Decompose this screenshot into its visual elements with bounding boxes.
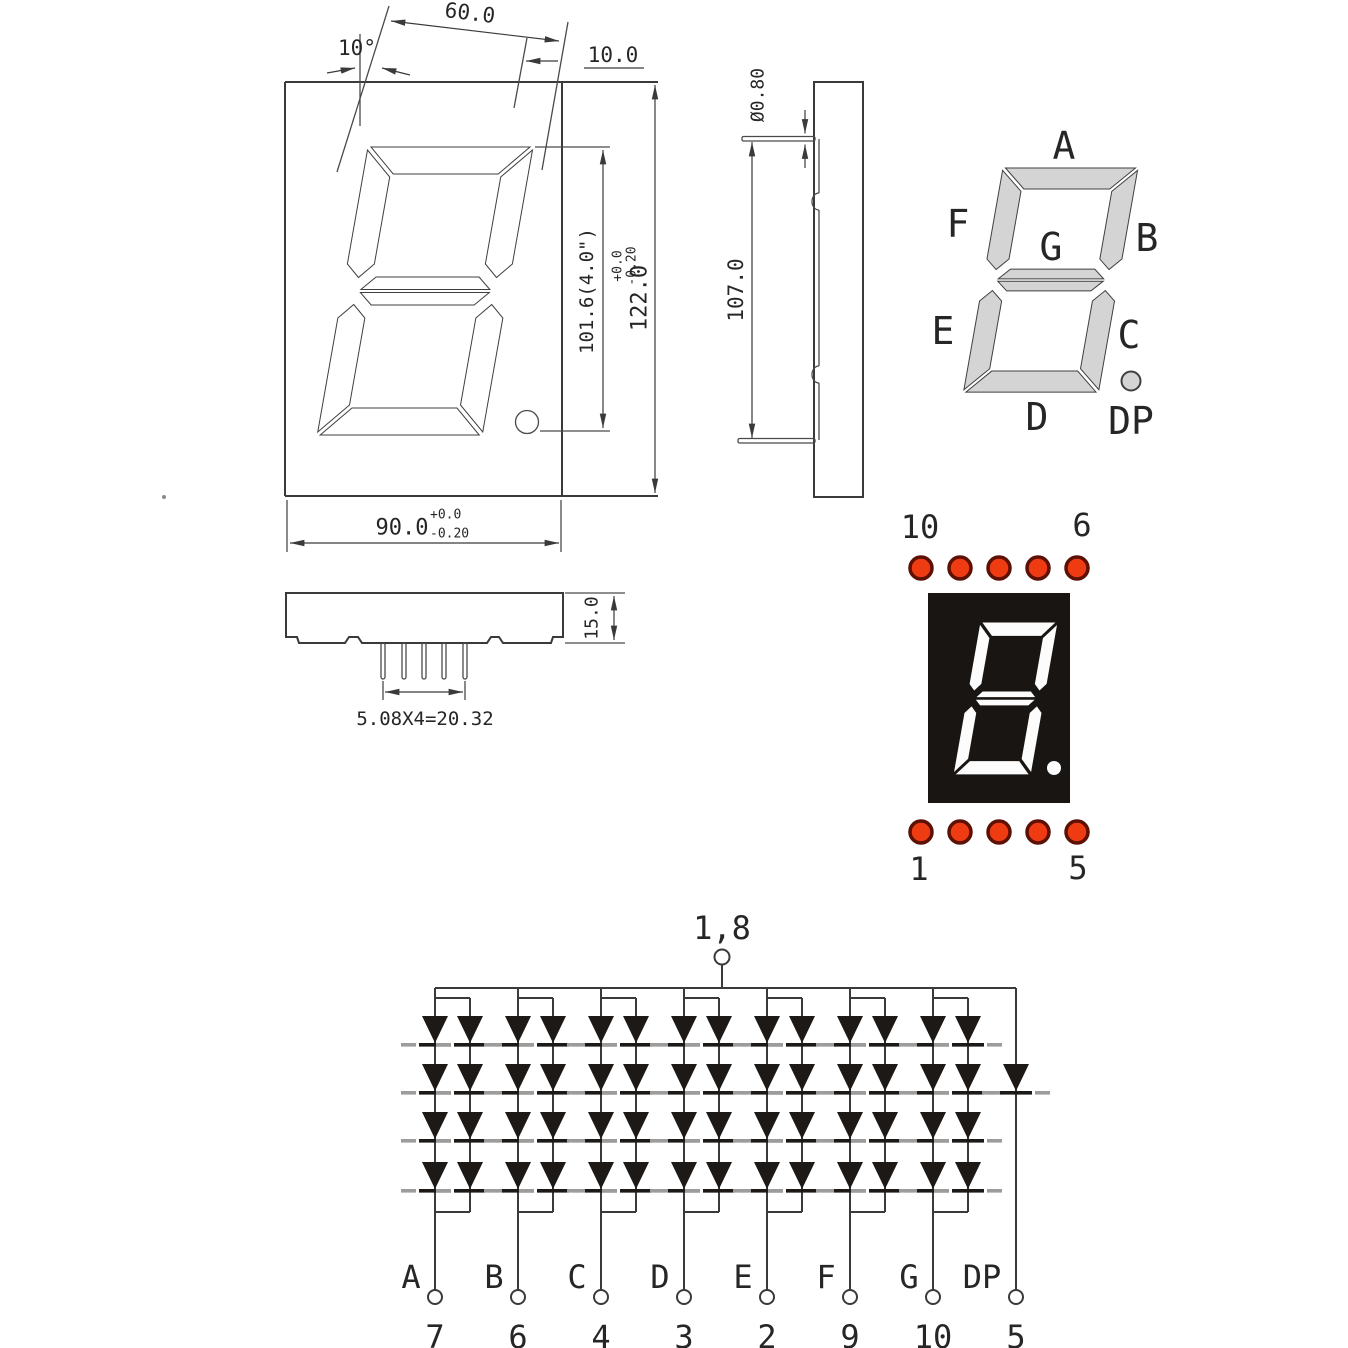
led-pin-dot	[1066, 821, 1088, 843]
dim-label-body-width: 90.0	[376, 516, 429, 541]
seven-segment-datasheet: 60.0 10° 10.0 101.6(4.0") 122.0 +0.0 -0.…	[0, 0, 1348, 1348]
diode-icon	[519, 1064, 587, 1095]
pin-terminal	[926, 1290, 940, 1304]
diode-icon	[484, 1016, 552, 1047]
decimal-point-outline	[516, 411, 539, 434]
display-pin-label-6: 6	[1072, 506, 1091, 544]
diode-icon	[685, 1162, 753, 1193]
dim-tol-body-height-plus: +0.0	[611, 250, 626, 281]
slant-line-offset	[514, 38, 527, 108]
diode-icon	[685, 1112, 753, 1143]
bottom-body-outline	[286, 593, 563, 643]
diode-icon	[650, 1112, 718, 1143]
circuit-pin-number: 3	[674, 1318, 693, 1348]
circuit-segment-strings: A7B6C4D3E2F9G10DP5	[401, 988, 1050, 1348]
display-pin-label-1: 1	[909, 850, 928, 888]
bottom-pin	[463, 643, 467, 679]
side-pin-top	[742, 137, 815, 142]
circuit-diagram: 1,8 A7B6C4D3E2F9G10DP5	[401, 909, 1050, 1348]
dim-label-pin-pitch: 5.08X4=20.32	[356, 708, 493, 730]
segment-label-dp: DP	[1108, 399, 1154, 443]
pin-terminal	[594, 1290, 608, 1304]
diode-icon	[436, 1112, 504, 1143]
led-pin-dot	[949, 821, 971, 843]
circuit-pin-number: 4	[591, 1318, 610, 1348]
diode-icon	[851, 1016, 919, 1047]
diode-icon	[816, 1016, 884, 1047]
diode-icon	[519, 1016, 587, 1047]
diode-icon	[401, 1162, 469, 1193]
segment-label-b: B	[1136, 216, 1159, 260]
segment-label-f: F	[947, 202, 970, 246]
segment-label-e: E	[932, 309, 955, 353]
circuit-segment-label: F	[816, 1258, 835, 1296]
side-view-drawing: Ø0.80 107.0	[724, 68, 863, 497]
angle-arrow-right	[382, 68, 410, 75]
diode-icon	[401, 1112, 469, 1143]
diode-icon	[768, 1016, 836, 1047]
pin-terminal	[511, 1290, 525, 1304]
diode-icon	[650, 1016, 718, 1047]
led-pin-dot	[949, 557, 971, 579]
diode-icon	[816, 1064, 884, 1095]
side-pin-bottom	[738, 439, 815, 444]
bottom-pins	[381, 643, 467, 679]
angle-arrow-left	[327, 68, 355, 73]
decimal-point-gray	[1122, 372, 1141, 391]
diode-icon	[851, 1162, 919, 1193]
diode-icon	[851, 1112, 919, 1143]
led-pin-dot	[988, 557, 1010, 579]
diode-icon	[567, 1112, 635, 1143]
dim-label-thickness: 15.0	[582, 596, 603, 639]
diode-icon	[816, 1112, 884, 1143]
decimal-point-white	[1047, 761, 1061, 775]
diode-icon	[685, 1016, 753, 1047]
dim-label-10: 10.0	[588, 43, 639, 67]
diode-icon	[899, 1016, 967, 1047]
diode-icon	[484, 1064, 552, 1095]
ext-lines-digit-height	[535, 147, 610, 431]
digit-outline-front	[317, 147, 533, 435]
dim-label-pin-diameter: Ø0.80	[748, 68, 769, 122]
display-pin-label-10: 10	[901, 508, 940, 546]
display-module: 10 6 1 5	[901, 506, 1092, 888]
diode-icon	[602, 1162, 670, 1193]
diode-icon	[982, 1064, 1050, 1095]
pin-terminal	[760, 1290, 774, 1304]
diode-icon	[733, 1064, 801, 1095]
dim-tol-body-width-minus: -0.20	[430, 527, 469, 542]
diode-icon	[768, 1162, 836, 1193]
segment-map-diagram: A F G B E C D DP	[932, 124, 1159, 443]
circuit-segment-label: E	[733, 1258, 752, 1296]
dim-label-60: 60.0	[443, 0, 496, 28]
circuit-segment-label: DP	[963, 1258, 1002, 1296]
common-pin-label: 1,8	[693, 909, 751, 947]
pin-terminal	[843, 1290, 857, 1304]
pin-terminal	[677, 1290, 691, 1304]
bottom-pin	[442, 643, 446, 679]
diode-icon	[899, 1112, 967, 1143]
diode-icon	[602, 1064, 670, 1095]
diode-icon	[816, 1162, 884, 1193]
diode-icon	[567, 1016, 635, 1047]
stray-mark	[162, 495, 166, 499]
circuit-pin-number: 10	[914, 1318, 953, 1348]
circuit-pin-number: 2	[757, 1318, 776, 1348]
diode-icon	[401, 1064, 469, 1095]
datasheet-canvas: 60.0 10° 10.0 101.6(4.0") 122.0 +0.0 -0.…	[0, 0, 1348, 1348]
dim-label-pin-span: 107.0	[724, 258, 748, 321]
led-pin-dot	[1027, 557, 1049, 579]
diode-icon	[436, 1064, 504, 1095]
diode-icon	[934, 1064, 1002, 1095]
segment-label-d: D	[1026, 395, 1049, 439]
led-pin-dot	[1027, 821, 1049, 843]
front-view-drawing: 60.0 10° 10.0 101.6(4.0") 122.0 +0.0 -0.…	[285, 0, 658, 552]
common-pin-terminal	[715, 950, 730, 965]
led-pin-dot	[910, 557, 932, 579]
diode-icon	[851, 1064, 919, 1095]
bottom-pin	[402, 643, 406, 679]
circuit-pin-number: 5	[1006, 1318, 1025, 1348]
diode-icon	[685, 1064, 753, 1095]
diode-icon	[602, 1112, 670, 1143]
diode-icon	[401, 1016, 469, 1047]
diode-icon	[768, 1064, 836, 1095]
diode-icon	[733, 1112, 801, 1143]
pin-terminal	[1009, 1290, 1023, 1304]
diode-icon	[484, 1162, 552, 1193]
slant-line-right	[542, 22, 568, 170]
side-body-outline	[814, 82, 863, 497]
display-pin-label-5: 5	[1068, 849, 1087, 887]
diode-icon	[567, 1162, 635, 1193]
diode-icon	[567, 1064, 635, 1095]
diode-icon	[650, 1064, 718, 1095]
led-pin-dot	[988, 821, 1010, 843]
segment-label-c: C	[1118, 313, 1141, 357]
circuit-pin-number: 7	[425, 1318, 444, 1348]
circuit-segment-label: C	[567, 1258, 586, 1296]
diode-icon	[519, 1162, 587, 1193]
diode-icon	[768, 1112, 836, 1143]
diode-icon	[934, 1016, 1002, 1047]
led-pin-dot	[910, 821, 932, 843]
diode-icon	[934, 1112, 1002, 1143]
diode-icon	[934, 1162, 1002, 1193]
led-pin-dot	[1066, 557, 1088, 579]
dim-label-angle: 10°	[338, 36, 376, 60]
common-bus	[435, 965, 1016, 989]
circuit-segment-label: D	[650, 1258, 669, 1296]
diode-icon	[650, 1162, 718, 1193]
circuit-segment-label: G	[899, 1258, 918, 1296]
digit-gray-segments	[963, 168, 1137, 392]
segment-label-g: G	[1040, 225, 1063, 269]
dim-tol-body-width-plus: +0.0	[430, 508, 461, 523]
segment-label-a: A	[1053, 124, 1076, 168]
diode-icon	[733, 1162, 801, 1193]
circuit-segment-label: B	[484, 1258, 503, 1296]
diode-icon	[519, 1112, 587, 1143]
diode-icon	[733, 1016, 801, 1047]
ext-lines-pin-pitch	[383, 681, 465, 700]
circuit-pin-number: 9	[840, 1318, 859, 1348]
pin-terminal	[428, 1290, 442, 1304]
diode-icon	[899, 1162, 967, 1193]
diode-icon	[602, 1016, 670, 1047]
diode-icon	[484, 1112, 552, 1143]
dim-label-digit-height: 101.6(4.0")	[576, 228, 598, 354]
bottom-view-drawing: 5.08X4=20.32 15.0	[286, 593, 625, 730]
diode-icon	[899, 1064, 967, 1095]
circuit-segment-label: A	[401, 1258, 420, 1296]
diode-icon	[436, 1016, 504, 1047]
bottom-pin	[422, 643, 426, 679]
dim-tol-body-height-minus: -0.20	[625, 246, 640, 285]
circuit-pin-number: 6	[508, 1318, 527, 1348]
diode-icon	[436, 1162, 504, 1193]
bottom-pin	[381, 643, 385, 679]
